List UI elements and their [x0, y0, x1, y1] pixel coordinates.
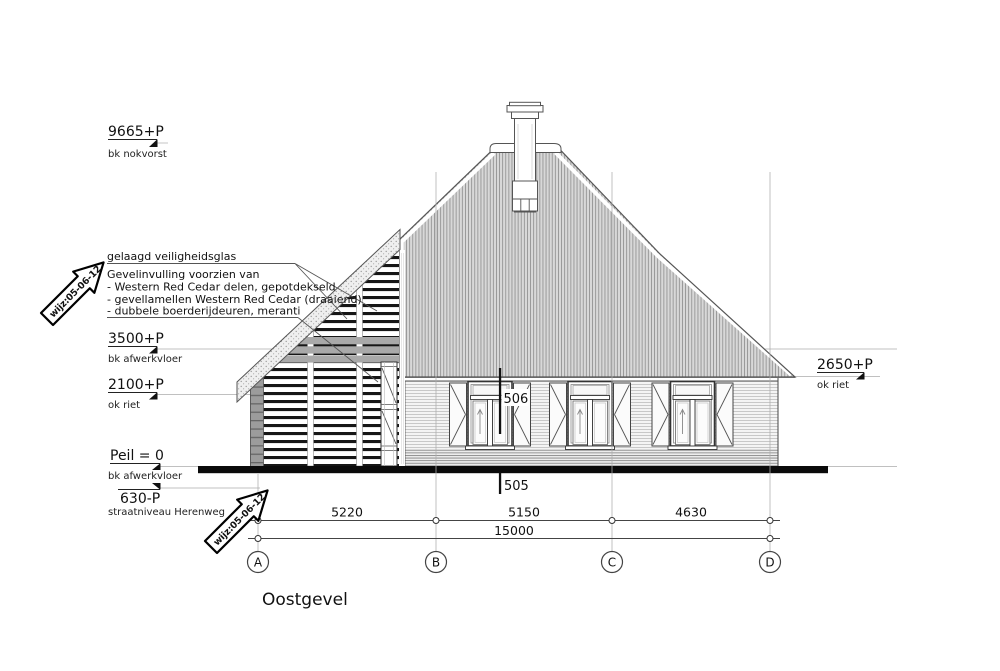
grid-label-c: C	[608, 556, 616, 570]
svg-text:ok riet: ok riet	[817, 380, 849, 391]
svg-text:bk afwerkvloer: bk afwerkvloer	[108, 471, 183, 482]
left-wing-gable	[237, 230, 405, 467]
level-mark-icon	[149, 393, 157, 400]
thatched-main-roof	[399, 144, 795, 378]
grid-label-d: D	[765, 556, 774, 570]
svg-text:2100+P: 2100+P	[108, 377, 164, 393]
plinth	[405, 449, 778, 466]
svg-text:630-P: 630-P	[120, 491, 160, 507]
revision-stamp-arrow: wijz:05-06-12	[200, 480, 278, 558]
grid-label-a: A	[254, 556, 263, 570]
grid-bubbles: A B C D	[248, 552, 781, 573]
dim-total: 15000	[494, 523, 534, 538]
level-okriet-right: 2650+P ok riet	[817, 357, 873, 391]
level-mark-icon	[149, 347, 157, 354]
annotation-infill-item: - Western Red Cedar delen, gepotdekseld	[107, 281, 336, 294]
east-elevation-svg: 506 505 5220 5150 4630 15000 A B C D 966…	[0, 0, 1000, 671]
window-2	[550, 382, 631, 450]
dim-span-ab: 5220	[331, 505, 363, 520]
ridge-cap-right	[536, 144, 562, 153]
chimney-base	[513, 181, 538, 199]
level-mark-icon	[152, 483, 160, 490]
corner-board	[400, 250, 405, 466]
svg-text:Peil = 0: Peil = 0	[110, 448, 164, 464]
elevation-drawing-sheet: 506 505 5220 5150 4630 15000 A B C D 966…	[0, 0, 1000, 671]
svg-text:9665+P: 9665+P	[108, 124, 164, 140]
level-afwerkvloer: 3500+P bk afwerkvloer	[108, 331, 183, 365]
eave-fascia	[399, 378, 795, 381]
section-label-506: 506	[504, 392, 529, 407]
level-okriet-left: 2100+P ok riet	[108, 377, 164, 411]
section-marker-lower: 505	[499, 473, 529, 495]
gray-slat-column	[250, 230, 264, 466]
farm-door	[381, 362, 397, 466]
level-mark-icon	[152, 464, 160, 471]
annotation-glass: gelaagd veiligheidsglas	[107, 250, 236, 263]
level-mark-icon	[856, 373, 864, 380]
chimney-grille	[513, 199, 538, 211]
chimney-cap-plate	[507, 106, 543, 113]
level-mark-icon	[149, 140, 157, 148]
ground-line-bar	[198, 466, 828, 473]
roof-surface	[399, 145, 795, 378]
annotation-infill-item: - dubbele boerderijdeuren, meranti	[107, 305, 301, 318]
window-3	[652, 382, 733, 450]
svg-text:straatniveau Herenweg: straatniveau Herenweg	[108, 507, 225, 518]
section-label-505: 505	[504, 479, 529, 494]
gray-band	[250, 337, 399, 344]
level-peil: Peil = 0 bk afwerkvloer	[108, 448, 183, 482]
ridge-cap-left	[490, 144, 515, 153]
dimension-lines: 5220 5150 4630 15000	[248, 505, 780, 542]
drawing-title: Oostgevel	[262, 590, 348, 610]
dim-span-bc: 5150	[508, 505, 540, 520]
revision-stamp-arrow: wijz:05-06-12	[36, 252, 114, 330]
chimney-cap-top	[510, 102, 541, 105]
svg-text:bk nokvorst: bk nokvorst	[108, 149, 167, 160]
svg-text:ok riet: ok riet	[108, 400, 140, 411]
svg-text:bk afwerkvloer: bk afwerkvloer	[108, 354, 183, 365]
level-nokvorst: 9665+P bk nokvorst	[108, 124, 167, 160]
svg-text:3500+P: 3500+P	[108, 331, 164, 347]
dim-span-cd: 4630	[675, 505, 707, 520]
annotation-infill-title: Gevelinvulling voorzien van	[107, 268, 260, 281]
chimney-collar	[512, 112, 539, 119]
svg-text:2650+P: 2650+P	[817, 357, 873, 373]
grid-label-b: B	[432, 556, 440, 570]
